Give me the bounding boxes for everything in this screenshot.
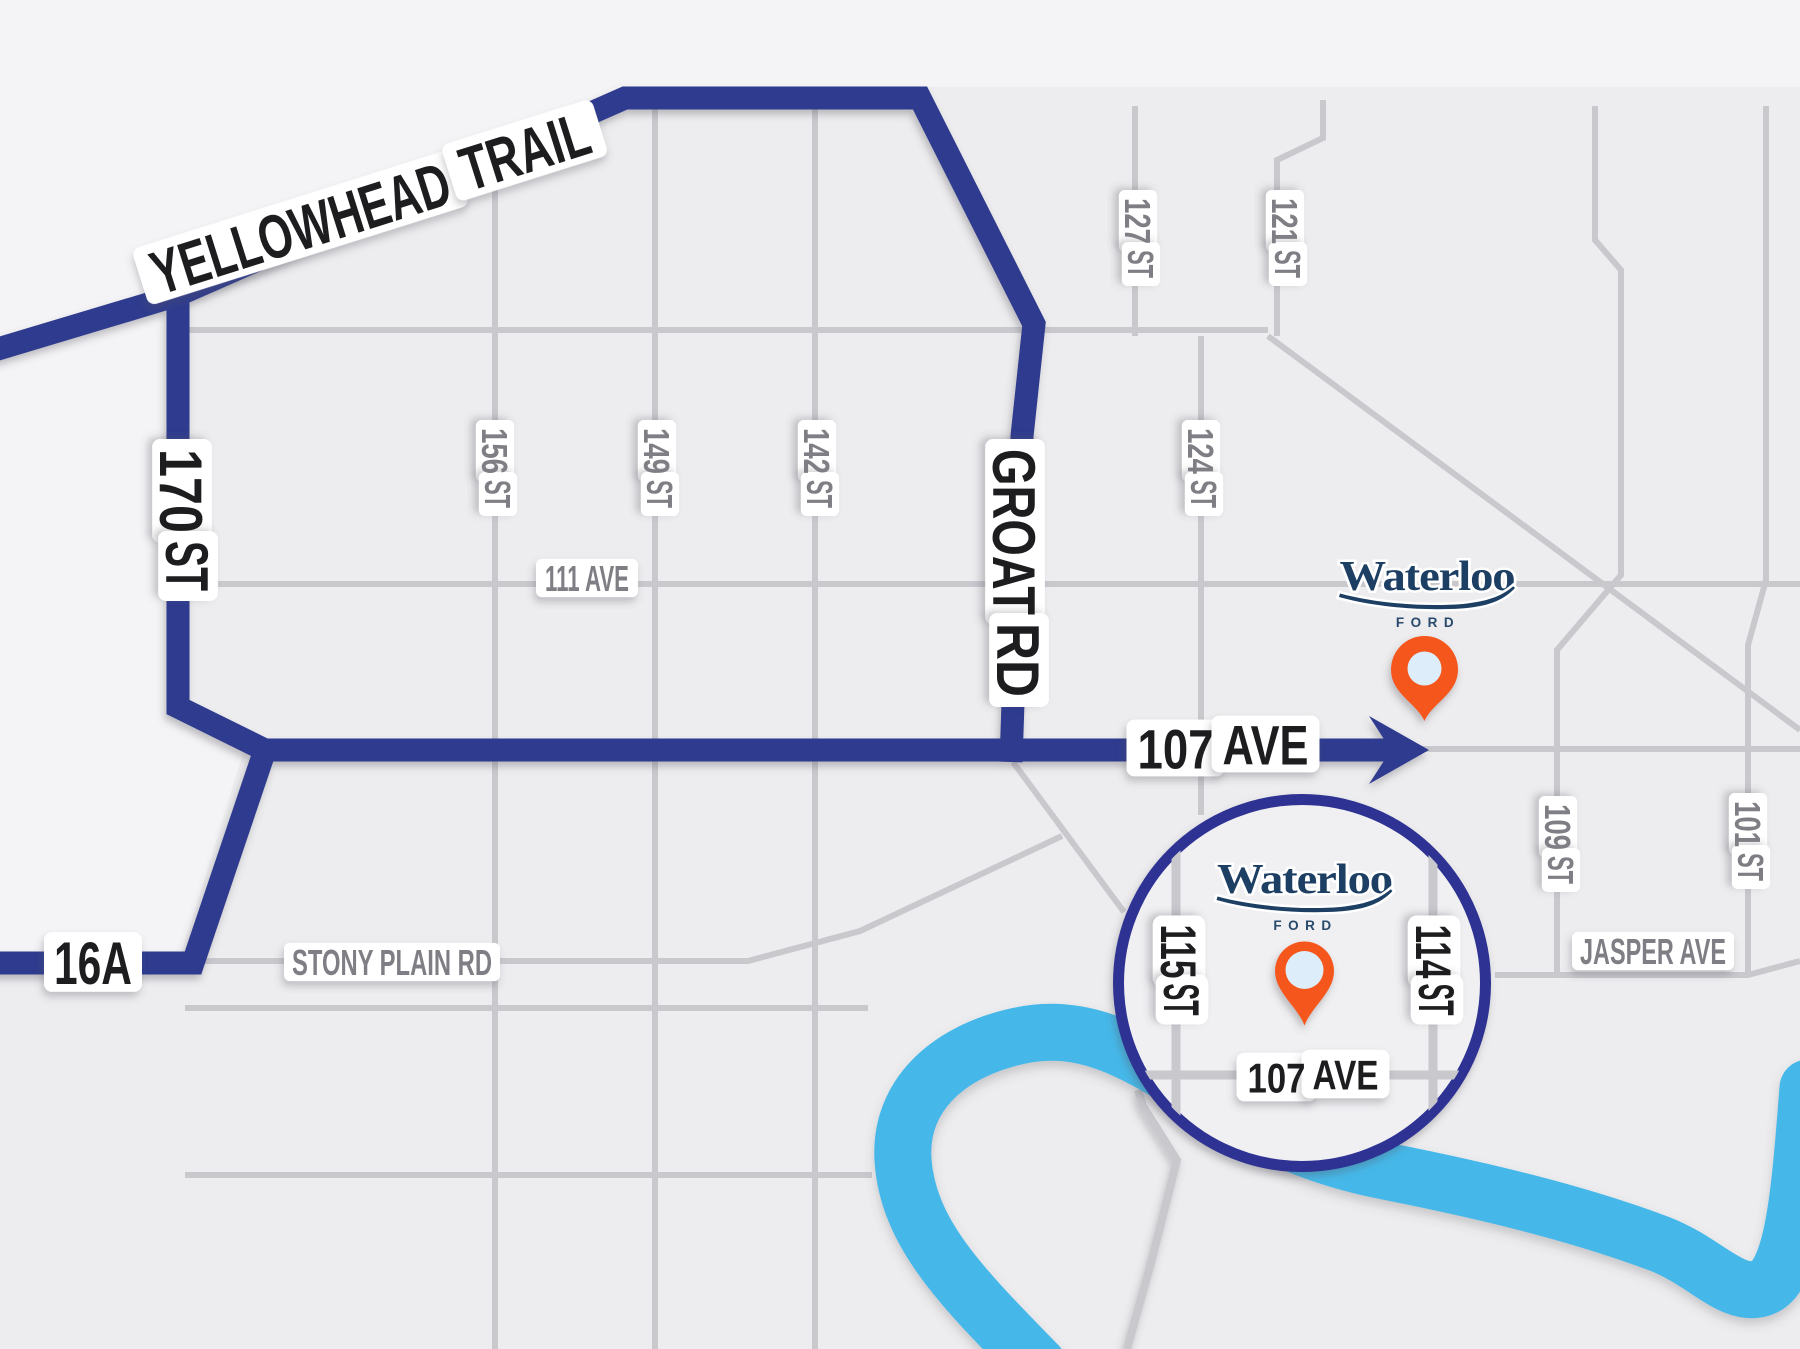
svg-text:AVE: AVE <box>1223 713 1309 776</box>
svg-text:111 AVE: 111 AVE <box>545 558 629 599</box>
svg-text:ST: ST <box>1120 250 1161 278</box>
svg-text:ST: ST <box>1540 856 1581 884</box>
svg-text:101: 101 <box>1727 801 1768 847</box>
svg-text:ST: ST <box>1730 853 1771 881</box>
svg-text:121: 121 <box>1264 198 1305 244</box>
svg-text:Waterloo: Waterloo <box>1217 857 1392 903</box>
svg-text:109: 109 <box>1537 804 1578 850</box>
svg-text:ST: ST <box>799 480 840 508</box>
svg-text:ST: ST <box>477 480 518 508</box>
svg-text:115: 115 <box>1150 925 1206 979</box>
svg-text:ST: ST <box>1408 984 1464 1016</box>
svg-text:170: 170 <box>147 449 214 533</box>
svg-text:114: 114 <box>1405 925 1461 979</box>
svg-text:ST: ST <box>1153 984 1209 1016</box>
svg-text:JASPER AVE: JASPER AVE <box>1580 931 1726 972</box>
svg-text:142: 142 <box>796 428 837 474</box>
svg-text:AVE: AVE <box>1313 1051 1379 1098</box>
svg-text:107: 107 <box>1138 717 1214 780</box>
svg-text:149: 149 <box>636 428 677 474</box>
svg-text:RD: RD <box>984 623 1051 697</box>
svg-text:FORD: FORD <box>1396 615 1460 630</box>
svg-text:FORD: FORD <box>1273 918 1337 933</box>
svg-text:107: 107 <box>1248 1054 1306 1101</box>
svg-text:STONY PLAIN RD: STONY PLAIN RD <box>292 942 492 983</box>
svg-text:GROAT: GROAT <box>980 449 1047 615</box>
svg-text:Waterloo: Waterloo <box>1340 554 1515 600</box>
svg-text:ST: ST <box>1267 250 1308 278</box>
svg-text:16A: 16A <box>54 930 132 997</box>
svg-text:ST: ST <box>153 541 220 591</box>
svg-text:ST: ST <box>639 480 680 508</box>
svg-text:ST: ST <box>1183 480 1224 508</box>
svg-text:156: 156 <box>474 428 515 474</box>
svg-text:124: 124 <box>1180 428 1221 474</box>
svg-text:127: 127 <box>1117 198 1158 244</box>
